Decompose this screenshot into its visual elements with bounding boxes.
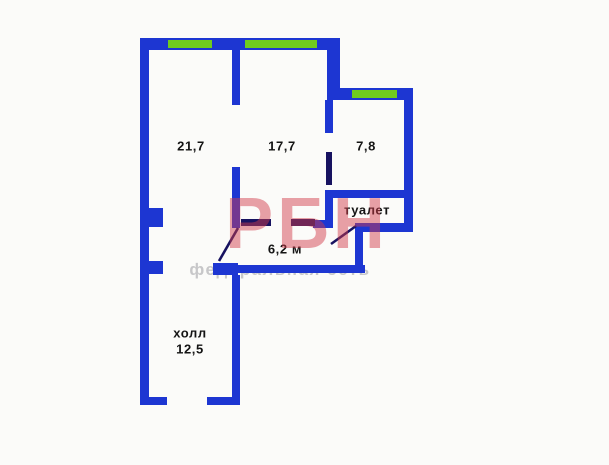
hall-area: 12,5 xyxy=(173,342,206,357)
room-area-label-left: 21,7 xyxy=(177,139,205,154)
room-area-label-right: 7,8 xyxy=(356,139,376,154)
room-area-label-middle: 17,7 xyxy=(268,139,296,154)
hall-name: холл xyxy=(173,326,206,341)
floorplan-canvas: 21,7 17,7 7,8 туалет 6,2 м холл 12,5 фед… xyxy=(0,0,609,465)
watermark-brand: РБН xyxy=(225,188,389,260)
hall-label: холл 12,5 xyxy=(173,326,206,357)
